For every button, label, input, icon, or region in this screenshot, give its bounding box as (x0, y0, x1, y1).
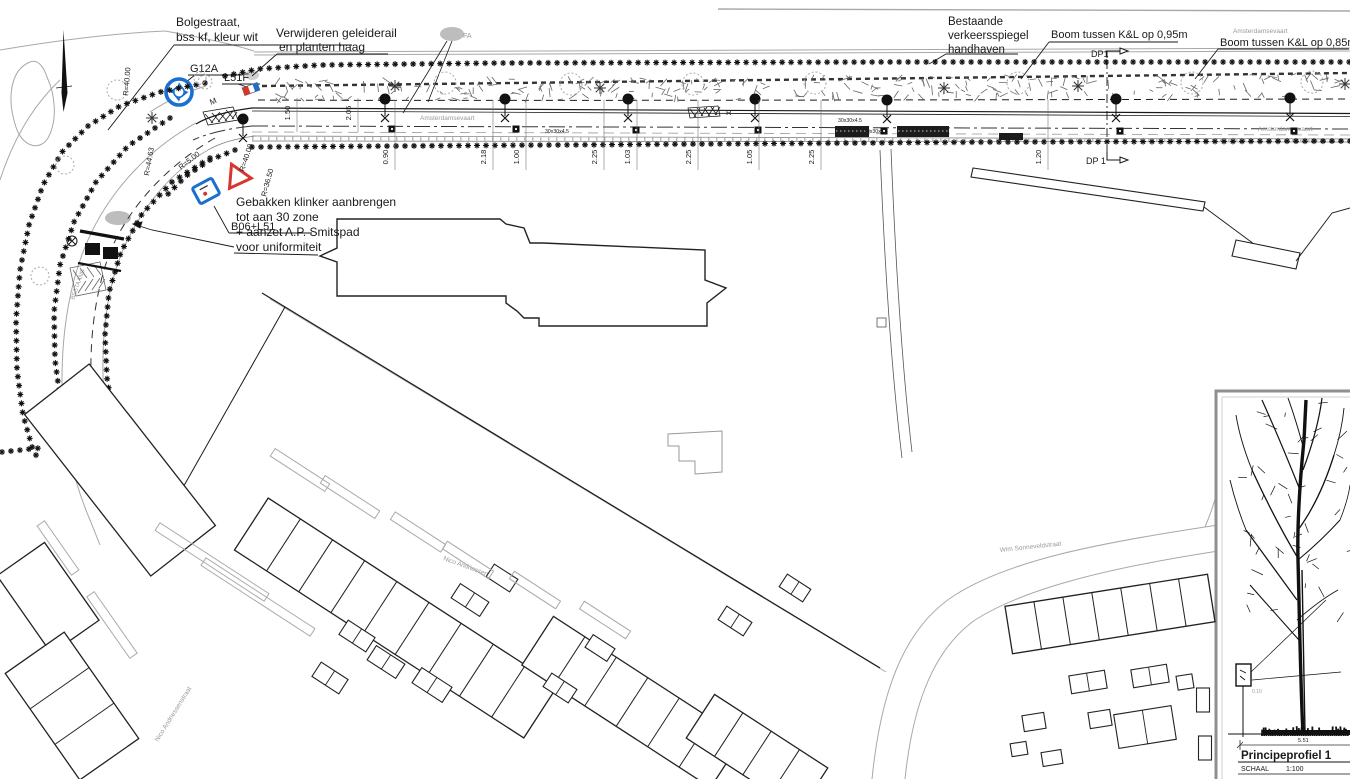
boundary-star (56, 270, 62, 276)
boundary-star (1211, 59, 1217, 65)
lamp-post-symbol (389, 126, 396, 133)
boundary-star (662, 60, 668, 66)
boundary-star (564, 142, 570, 148)
boundary-star (202, 80, 208, 86)
boundary-star (599, 60, 605, 66)
r-marking: R (726, 108, 732, 117)
boundary-star (419, 61, 425, 67)
boundary-star (905, 59, 911, 65)
boundary-star (1338, 138, 1344, 144)
boundary-star (869, 59, 875, 65)
boundary-star (834, 140, 840, 146)
boundary-star (932, 59, 938, 65)
boundary-star (102, 331, 108, 337)
boundary-star (8, 448, 14, 454)
radius-label: R=44.63 (142, 147, 156, 177)
boundary-star (51, 306, 57, 312)
boundary-star (456, 143, 462, 149)
boundary-star (906, 140, 912, 146)
boundary-star (888, 140, 894, 146)
boundary-star (1067, 59, 1073, 65)
boundary-star (149, 92, 155, 98)
boundary-star (861, 140, 867, 146)
boundary-star (152, 125, 158, 131)
boundary-star (55, 279, 61, 285)
boundary-star (464, 60, 470, 66)
boundary-star (698, 59, 704, 65)
housing-row (25, 364, 216, 576)
new-tree-symbol (1285, 93, 1296, 122)
boundary-star (1032, 139, 1038, 145)
boundary-star (375, 143, 381, 149)
boundary-star (321, 144, 327, 150)
shed-outline (451, 584, 489, 617)
boundary-star (527, 60, 533, 66)
boundary-star (303, 144, 309, 150)
existing-gray-layer (0, 9, 1350, 779)
boundary-star (546, 142, 552, 148)
boundary-star (447, 143, 453, 149)
boundary-star (158, 89, 164, 95)
boundary-star (93, 179, 99, 185)
boundary-star (105, 304, 111, 310)
boundary-star (825, 140, 831, 146)
boundary-star (1139, 59, 1145, 65)
boundary-star (914, 59, 920, 65)
existing-tree-canopy (560, 73, 582, 95)
boundary-star (311, 62, 317, 68)
boundary-star (103, 358, 109, 364)
boundary-star (878, 59, 884, 65)
boundary-star (626, 60, 632, 66)
boundary-star (896, 59, 902, 65)
boundary-star (275, 65, 281, 71)
boundary-star (959, 59, 965, 65)
boundary-star (987, 139, 993, 145)
label-gebakken-line: Gebakken klinker aanbrengen (236, 195, 396, 209)
boundary-star (41, 180, 47, 186)
site-plan-drawing: Bolgestraat, bss kf, kleur wit Verwijder… (0, 0, 1350, 779)
parking-strip (509, 571, 560, 609)
boundary-star (1329, 138, 1335, 144)
lamp-post-symbol (633, 127, 640, 134)
boundary-star (887, 59, 893, 65)
boundary-star (1085, 59, 1091, 65)
boundary-star (130, 140, 136, 146)
label-fa: FA (463, 33, 472, 40)
north-arrow-icon (56, 30, 72, 112)
boundary-star (88, 187, 94, 193)
boundary-star (455, 60, 461, 66)
dimension-label: 1.03 (623, 150, 632, 165)
boundary-star (951, 139, 957, 145)
boundary-star (312, 144, 318, 150)
boundary-star (24, 231, 30, 237)
boundary-star (924, 139, 930, 145)
boundary-star (1283, 59, 1289, 65)
boundary-star (1076, 59, 1082, 65)
boundary-star (165, 191, 171, 197)
boundary-star (609, 142, 615, 148)
inset-title: Principeprofiel 1 (1241, 750, 1332, 762)
boundary-star (53, 297, 59, 303)
boundary-star (1175, 59, 1181, 65)
boundary-star (824, 59, 830, 65)
street-amsterdamsevaart-2: Amsterdamsevaart (1233, 28, 1288, 35)
boundary-star (1328, 59, 1334, 65)
boundary-star (1256, 59, 1262, 65)
boundary-star (1184, 59, 1190, 65)
boundary-star (13, 338, 19, 344)
boundary-star (54, 369, 60, 375)
boundary-star (933, 139, 939, 145)
boundary-star (105, 295, 111, 301)
boundary-star (771, 141, 777, 147)
boundary-star (725, 59, 731, 65)
boundary-star (84, 195, 90, 201)
boundary-star (743, 59, 749, 65)
boundary-star (374, 61, 380, 67)
boundary-star (1194, 138, 1200, 144)
boundary-star (329, 62, 335, 68)
boundary-star (19, 257, 25, 263)
existing-tree-canopy (31, 267, 49, 285)
boundary-star (1104, 139, 1110, 145)
boundary-star (941, 59, 947, 65)
dimension-label: 1.05 (745, 150, 754, 165)
boundary-star (1022, 59, 1028, 65)
boundary-star (915, 140, 921, 146)
boundary-star (294, 144, 300, 150)
label-verkeersspiegel-line: verkeersspiegel (948, 30, 1029, 42)
boundary-star (117, 152, 123, 158)
boundary-star (222, 73, 228, 79)
shed-outline (1176, 674, 1194, 690)
shed-outline (1022, 712, 1046, 731)
radius-label: R=40.00 (121, 67, 132, 96)
boundary-star (1113, 139, 1119, 145)
existing-tree-burst (146, 112, 158, 124)
boundary-star (1319, 59, 1325, 65)
boundary-star (13, 320, 19, 326)
new-tree-symbol (1111, 94, 1122, 123)
existing-tree-burst (1072, 80, 1084, 92)
tile-spec-label: 30x30x4.5 (545, 129, 569, 135)
boundary-star (366, 143, 372, 149)
boundary-star (51, 315, 57, 321)
boundary-star (734, 59, 740, 65)
boundary-star (473, 60, 479, 66)
boundary-star (107, 286, 113, 292)
boundary-star (1121, 59, 1127, 65)
parking-strip (87, 592, 137, 659)
plan-svg: Bolgestraat, bss kf, kleur wit Verwijder… (0, 0, 1350, 779)
boundary-star (160, 120, 166, 126)
boundary-star (38, 188, 44, 194)
existing-tree-canopy (682, 73, 704, 95)
boundary-star (509, 60, 515, 66)
boundary-star (16, 383, 22, 389)
boundary-star (815, 59, 821, 65)
parking-strip (579, 601, 630, 639)
generated-layer: 0.902.181.002.251.032.251.052.251.201.50… (0, 16, 1350, 779)
boundary-star (1230, 138, 1236, 144)
dimension-label: 2.05 (344, 106, 353, 121)
boundary-star (1131, 139, 1137, 145)
boundary-star (1112, 59, 1118, 65)
boundary-star (806, 59, 812, 65)
dimension-label: 0.90 (381, 150, 390, 165)
boundary-star (851, 59, 857, 65)
boundary-star (137, 135, 143, 141)
boundary-star (103, 322, 109, 328)
label-verkeersspiegel-line: handhaven (948, 44, 1005, 56)
shed-outline (1199, 736, 1212, 760)
boundary-star (762, 141, 768, 147)
boundary-star (141, 95, 147, 101)
boundary-star (1265, 59, 1271, 65)
boundary-star (761, 59, 767, 65)
street-amsterdamsevaart-3: Amsterdamsevaart (1258, 126, 1313, 133)
boundary-star (689, 60, 695, 66)
boundary-star (465, 143, 471, 149)
dimension-label: 2.25 (807, 150, 816, 165)
boundary-star (411, 143, 417, 149)
boundary-star (257, 66, 263, 72)
boundary-star (1068, 139, 1074, 145)
street-amsterdamsevaart-1: Amsterdamsevaart (420, 115, 475, 122)
boundary-star (1158, 139, 1164, 145)
label-gebakken-line: tot aan 30 zone (236, 210, 319, 224)
boundary-star (93, 118, 99, 124)
boundary-star (1031, 59, 1037, 65)
boundary-star (672, 141, 678, 147)
boundary-star (1220, 59, 1226, 65)
inset-panel (1216, 391, 1350, 779)
boundary-star (510, 142, 516, 148)
boundary-star (177, 174, 183, 180)
lamp-post-symbol (513, 126, 520, 133)
boundary-star (14, 356, 20, 362)
boundary-star (207, 155, 213, 161)
dimension-label: 1.20 (1034, 150, 1043, 165)
housing-row (0, 542, 99, 653)
boundary-star (1284, 138, 1290, 144)
parking-strip (390, 512, 445, 552)
boundary-star (258, 144, 264, 150)
boundary-star (591, 142, 597, 148)
boundary-star (60, 253, 66, 259)
boundary-star (320, 62, 326, 68)
boundary-star (1257, 138, 1263, 144)
boundary-star (57, 262, 63, 268)
parking-strip (320, 476, 379, 519)
boundary-star (338, 62, 344, 68)
boundary-star (1310, 59, 1316, 65)
boundary-star (1149, 139, 1155, 145)
boundary-star (14, 311, 20, 317)
boundary-star (16, 284, 22, 290)
boundary-star (32, 205, 38, 211)
boundary-star (1275, 138, 1281, 144)
boundary-star (66, 236, 72, 242)
shed-outline (1114, 706, 1177, 749)
r-marking: R (242, 115, 248, 124)
boundary-star (797, 59, 803, 65)
boundary-star (1292, 59, 1298, 65)
boundary-star (35, 196, 41, 202)
label-boom-095: Boom tussen K&L op 0,95m (1051, 29, 1188, 41)
boundary-star (267, 144, 273, 150)
label-bolgestraat-2: bss kf, kleur wit (176, 30, 259, 44)
street-nico-andriessenstraat-2: Nico Andriessenstraat (154, 686, 194, 743)
boundary-star (1157, 59, 1163, 65)
boundary-star (384, 143, 390, 149)
existing-tree-burst (389, 80, 401, 92)
boundary-star (1202, 59, 1208, 65)
boundary-star (52, 333, 58, 339)
boundary-star (80, 203, 86, 209)
dimension-label: 1.00 (512, 150, 521, 165)
dimension-label: 2.25 (590, 150, 599, 165)
boundary-star (104, 367, 110, 373)
boundary-star (870, 140, 876, 146)
boundary-star (501, 142, 507, 148)
boundary-star (1130, 59, 1136, 65)
boundary-star (437, 61, 443, 67)
boundary-star (16, 275, 22, 281)
inset-width-dim: 5.51 (1298, 738, 1309, 744)
boundary-star (17, 391, 23, 397)
boundary-star (54, 288, 60, 294)
boundary-star (1293, 138, 1299, 144)
boundary-star (707, 59, 713, 65)
boundary-star (1103, 59, 1109, 65)
boundary-star (708, 141, 714, 147)
boundary-star (356, 62, 362, 68)
boundary-star (102, 340, 108, 346)
boundary-star (770, 59, 776, 65)
boundary-star (14, 347, 20, 353)
boundary-star (26, 446, 32, 452)
boundary-star (157, 192, 163, 198)
boundary-star (1247, 59, 1253, 65)
new-tree-symbol (380, 94, 391, 123)
shed-outline (779, 574, 811, 602)
boundary-star (14, 365, 20, 371)
boundary-star (123, 146, 129, 152)
boundary-star (1166, 59, 1172, 65)
lamp-post-symbol (1291, 128, 1298, 135)
boundary-star (779, 59, 785, 65)
boundary-star (842, 59, 848, 65)
boundary-star (1167, 139, 1173, 145)
boundary-star (111, 159, 117, 165)
boundary-star (1077, 139, 1083, 145)
boundary-star (104, 313, 110, 319)
boundary-star (63, 244, 69, 250)
boundary-star (500, 60, 506, 66)
boundary-star (563, 60, 569, 66)
boundary-star (150, 199, 156, 205)
boundary-star (1050, 139, 1056, 145)
boundary-star (15, 293, 21, 299)
shed-outline (1010, 741, 1028, 756)
boundary-star (339, 143, 345, 149)
sign-l51f (242, 83, 260, 96)
boundary-star (680, 60, 686, 66)
boundary-star (1320, 138, 1326, 144)
inset-schaal-value: 1:100 (1286, 766, 1304, 773)
boundary-star (357, 143, 363, 149)
boundary-star (1229, 59, 1235, 65)
boundary-star (276, 144, 282, 150)
boundary-star (663, 141, 669, 147)
boundary-star (860, 59, 866, 65)
shed-outline (1088, 709, 1112, 728)
boundary-star (536, 60, 542, 66)
boundary-star (519, 142, 525, 148)
boundary-star (109, 278, 115, 284)
label-m-marking: M (208, 96, 218, 107)
boundary-star (14, 302, 20, 308)
boundary-star (1238, 59, 1244, 65)
boundary-star (51, 324, 57, 330)
shed-outline (1041, 750, 1063, 767)
boundary-star (410, 61, 416, 67)
boundary-star (1049, 59, 1055, 65)
new-tree-symbol (500, 94, 511, 123)
boundary-star (1239, 138, 1245, 144)
label-boom-085: Boom tussen K&L op 0,85m (1220, 37, 1350, 49)
boundary-star (600, 142, 606, 148)
boundary-star (302, 63, 308, 69)
boundary-star (115, 260, 121, 266)
boundary-star (699, 141, 705, 147)
boundary-star (284, 64, 290, 70)
boundary-star (0, 449, 5, 455)
boundary-star (690, 141, 696, 147)
tile-spec-label: 30x30x4.5 (838, 118, 862, 124)
shed-outline (1069, 670, 1107, 693)
boundary-star (100, 113, 106, 119)
shed-outline (1197, 688, 1210, 712)
existing-tree-canopy (1007, 72, 1029, 94)
boundary-star (402, 143, 408, 149)
boundary-star (645, 141, 651, 147)
boundary-star (144, 205, 150, 211)
boundary-star (528, 142, 534, 148)
boundary-star (653, 60, 659, 66)
boundary-star (986, 59, 992, 65)
existing-tree-burst (1339, 78, 1350, 90)
boundary-star (23, 239, 29, 245)
large-shed-building (320, 219, 726, 326)
boundary-star (285, 144, 291, 150)
boundary-star (798, 140, 804, 146)
boundary-star (99, 173, 105, 179)
boundary-star (617, 60, 623, 66)
boundary-star (132, 98, 138, 104)
boundary-star (716, 59, 722, 65)
boundary-star (843, 140, 849, 146)
radius-label: R=5.00 (177, 149, 202, 171)
new-tree-symbol (623, 94, 634, 123)
boundary-star (545, 60, 551, 66)
boundary-star (103, 349, 109, 355)
boundary-star (184, 84, 190, 90)
boundary-star (590, 60, 596, 66)
